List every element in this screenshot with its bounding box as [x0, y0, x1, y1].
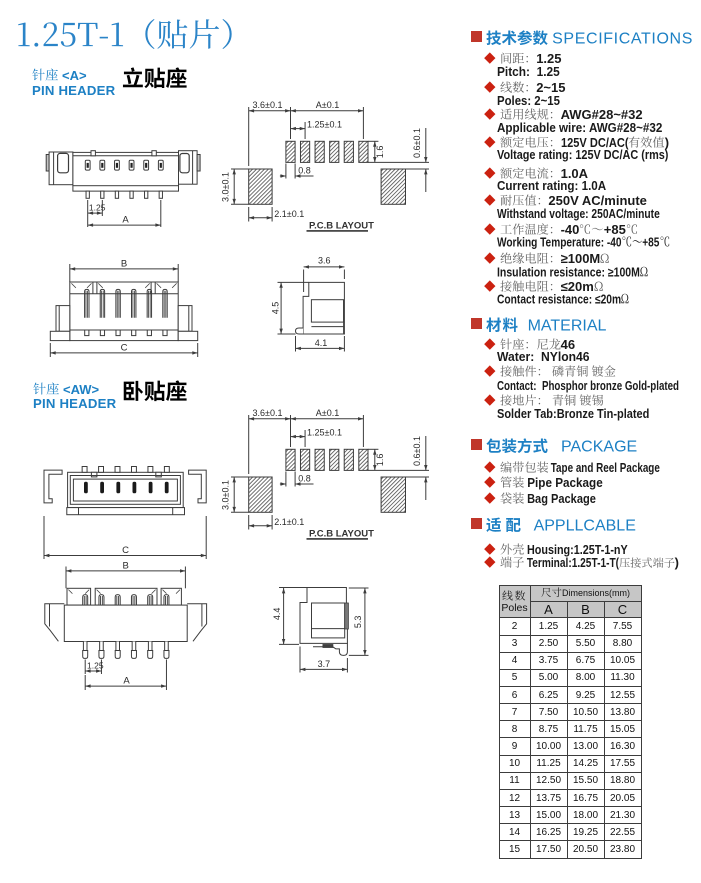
svg-text:2.1±0.1: 2.1±0.1	[274, 209, 304, 219]
svg-text:3.6±0.1: 3.6±0.1	[253, 408, 283, 418]
svg-text:3.7: 3.7	[318, 659, 331, 669]
svg-text:0.8: 0.8	[298, 473, 311, 483]
svg-text:2.1±0.1: 2.1±0.1	[274, 517, 304, 527]
svg-text:1.25±0.1: 1.25±0.1	[307, 119, 342, 129]
svg-text:3.0±0.1: 3.0±0.1	[221, 172, 231, 202]
svg-text:A: A	[123, 676, 130, 687]
svg-text:0.6±0.1: 0.6±0.1	[412, 128, 422, 158]
svg-text:1.25: 1.25	[87, 661, 104, 671]
svg-text:P.C.B LAYOUT: P.C.B LAYOUT	[309, 528, 374, 539]
svg-text:4.5: 4.5	[270, 302, 280, 315]
svg-text:1.25: 1.25	[89, 202, 106, 212]
svg-text:3.6±0.1: 3.6±0.1	[253, 100, 283, 110]
svg-text:5.3: 5.3	[353, 616, 363, 629]
svg-text:C: C	[121, 342, 128, 353]
svg-text:P.C.B LAYOUT: P.C.B LAYOUT	[309, 220, 374, 231]
svg-text:1.25±0.1: 1.25±0.1	[307, 427, 342, 437]
svg-text:A±0.1: A±0.1	[316, 100, 339, 110]
svg-text:0.6±0.1: 0.6±0.1	[412, 436, 422, 466]
svg-text:C: C	[122, 545, 129, 556]
svg-text:B: B	[121, 258, 127, 269]
svg-text:1.6: 1.6	[375, 453, 385, 466]
svg-text:B: B	[123, 560, 129, 571]
svg-text:4.4: 4.4	[272, 608, 282, 621]
svg-text:4.1: 4.1	[315, 338, 328, 348]
svg-text:A: A	[122, 215, 129, 226]
svg-text:1.6: 1.6	[375, 146, 385, 159]
svg-text:A±0.1: A±0.1	[316, 408, 339, 418]
svg-text:3.6: 3.6	[318, 255, 331, 265]
svg-text:0.8: 0.8	[298, 166, 311, 176]
